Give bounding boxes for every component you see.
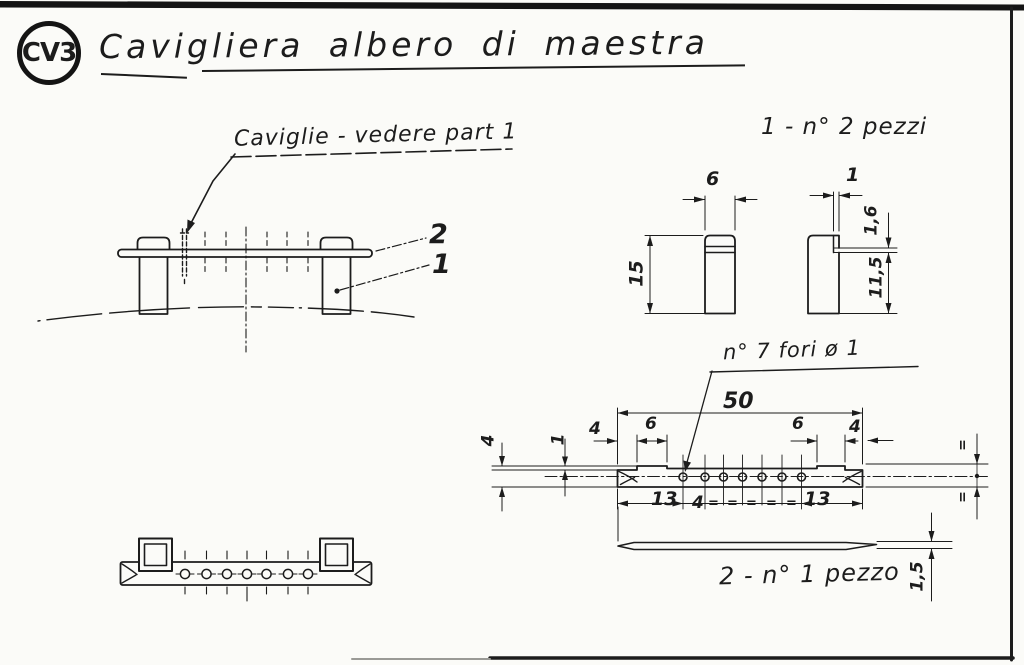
dim-post-height: 15 — [628, 260, 647, 286]
dim-end-right: 4 — [849, 419, 861, 436]
sheet-code-badge: CV3 — [17, 21, 81, 85]
dim-rail-length: 50 — [723, 391, 754, 413]
right-post — [323, 258, 351, 315]
dim-rail-width: 4 — [480, 435, 497, 447]
sheet-code: CV3 — [22, 38, 76, 68]
assembly-plan-view — [121, 539, 372, 602]
equal-mark: = — [786, 497, 797, 510]
right-post-cap — [321, 238, 353, 250]
leader-post-dot — [334, 288, 339, 293]
part-label-post: 1 — [432, 251, 451, 278]
dim-end-left: 4 — [589, 421, 601, 438]
note-fori: n° 7 fori ø 1 — [723, 338, 861, 364]
leader-post — [340, 265, 429, 290]
leader-rail — [376, 238, 426, 251]
drawing-sheet: CV3 Cavigliera albero di maestra Cavigli… — [0, 0, 1024, 665]
dim-seat-right: 6 — [792, 416, 804, 433]
left-post — [140, 258, 168, 315]
half-equal-top: = — [955, 439, 969, 451]
fori-underline — [710, 367, 918, 373]
rail — [118, 250, 372, 258]
note-piece2: 2 - n° 1 pezzo — [719, 560, 900, 589]
dim-seat-left: 6 — [645, 416, 657, 433]
dim-rail-thickness: 1,5 — [910, 561, 927, 591]
deck-line — [38, 307, 414, 321]
dim-notch-depth: 1 — [846, 166, 859, 185]
equal-mark: = — [766, 497, 777, 510]
equal-mark: = — [746, 497, 757, 510]
fori-leader — [686, 371, 712, 466]
page-title: Cavigliera albero di maestra — [99, 26, 709, 63]
post-front-detail-view — [645, 196, 757, 314]
equal-mark: = — [708, 497, 719, 510]
dim-below-notch: 11,5 — [868, 257, 885, 299]
dim-post-width: 6 — [706, 170, 719, 189]
dim-margin-right: 13 — [804, 490, 830, 509]
dim-step: 1 — [550, 434, 567, 446]
dim-margin-left: 13 — [651, 490, 677, 509]
note-arrowhead — [187, 220, 195, 234]
note-leader — [189, 154, 235, 227]
part-label-rail: 2 — [429, 221, 448, 248]
note-piece1: 1 - n° 2 pezzi — [761, 116, 927, 139]
half-equal-bottom: = — [955, 491, 969, 503]
equal-mark: = — [727, 497, 738, 510]
dim-pitch: 4 — [692, 495, 704, 512]
assembly-hole-marks — [176, 551, 317, 601]
rail-strip — [618, 543, 877, 550]
dim-cap-height: 1,6 — [864, 205, 881, 235]
left-post-cap — [138, 238, 170, 250]
